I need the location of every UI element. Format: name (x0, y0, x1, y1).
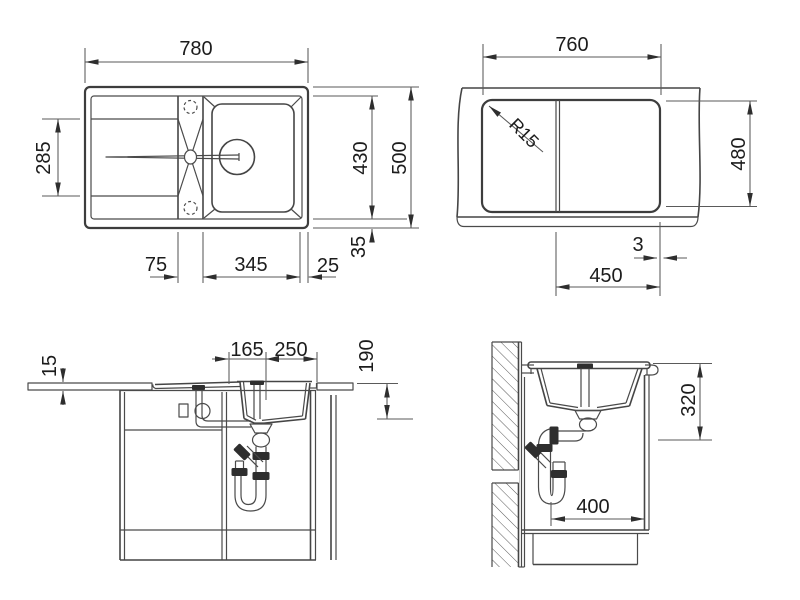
dim-label-430: 430 (350, 141, 372, 174)
drainboard-outlet (192, 385, 205, 390)
side-section-view: 320 400 (491, 342, 712, 567)
bowl-outline (212, 104, 294, 212)
dim-label-450: 450 (589, 265, 622, 287)
dim-label-500: 500 (389, 141, 411, 174)
dim-label-400: 400 (576, 496, 609, 518)
cutout-view: R15 760 480 3 450 (457, 34, 757, 296)
wall-outlet-nut (524, 441, 542, 459)
drain-fitting-cap (250, 381, 264, 386)
dim-label-r15: R15 (505, 114, 542, 151)
side-trap (524, 411, 601, 505)
dim-label-250: 250 (274, 339, 307, 361)
cutout-outline (482, 100, 660, 212)
dim-label-285: 285 (33, 141, 55, 174)
cutout-view-dimensions: 760 480 3 450 (483, 34, 757, 296)
side-sink-section (528, 362, 650, 411)
plan-view: 780 285 430 500 35 75 34 (33, 38, 419, 283)
drawing-svg: 780 285 430 500 35 75 34 (0, 0, 800, 600)
dim-label-25: 25 (317, 255, 339, 277)
dim-label-480: 480 (728, 137, 750, 170)
tap-hole-bottom (184, 202, 197, 215)
front-elevation-view: 165 250 15 190 (28, 339, 413, 560)
cutout-view-linework: R15 (457, 88, 700, 227)
dim-label-75: 75 (145, 254, 167, 276)
front-sink-section (153, 381, 317, 428)
drain-fitting-cap-side (577, 364, 593, 369)
dim-label-780: 780 (179, 38, 212, 60)
dishwasher-connection-nut (233, 443, 251, 461)
dim-label-345: 345 (234, 254, 267, 276)
drain-hole (220, 140, 255, 175)
tap-hole-top (184, 101, 197, 114)
plan-view-linework (85, 87, 308, 228)
dim-label-35-plan: 35 (348, 236, 370, 258)
dim-label-190: 190 (356, 339, 378, 372)
dim-label-3: 3 (632, 234, 643, 256)
dim-label-15: 15 (39, 355, 61, 377)
technical-drawing-sheet: 780 285 430 500 35 75 34 (0, 0, 800, 600)
cabinet-switch (179, 404, 188, 417)
side-wall (491, 342, 522, 567)
front-trap (232, 424, 273, 511)
front-cabinet (120, 390, 336, 560)
dim-label-320: 320 (678, 383, 700, 416)
dim-label-165: 165 (230, 339, 263, 361)
dim-label-760: 760 (555, 34, 588, 56)
